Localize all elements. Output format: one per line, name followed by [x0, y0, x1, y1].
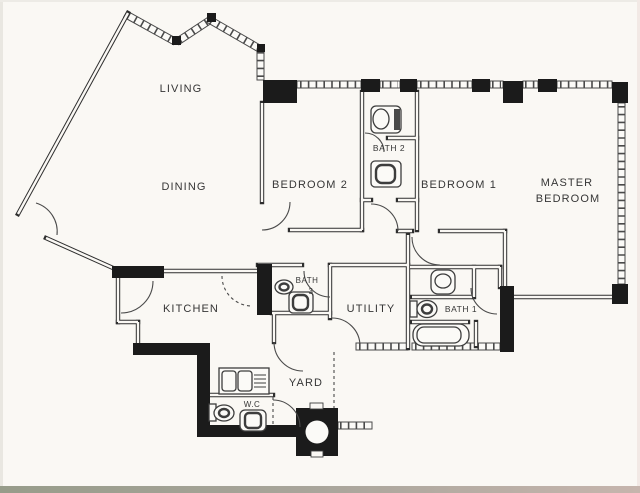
service-duct-column [296, 403, 338, 457]
washing-machine-counter [219, 368, 269, 394]
wc-label: W.C [244, 400, 261, 409]
wc-sink [209, 404, 234, 421]
walls [18, 13, 612, 395]
floor-plan-scan: LIVING DINING BEDROOM 2 BEDROOM 1 MASTER… [0, 0, 640, 493]
column-master-bottom [612, 284, 628, 304]
column-top-3 [472, 79, 490, 92]
bath1-toilet [431, 270, 455, 294]
column-top-1 [361, 79, 380, 92]
column-living-corner [263, 80, 297, 103]
column-top-4 [503, 81, 523, 103]
yard-door-arc [274, 342, 303, 371]
kitchen-label: KITCHEN [163, 303, 219, 315]
scan-edge-top [0, 0, 640, 2]
bath2-door-arc [371, 204, 398, 231]
balcony-joint-3 [257, 44, 265, 52]
bedroom2-door-arc [262, 202, 290, 230]
master-window-top [557, 81, 612, 88]
column-top-2 [400, 79, 417, 92]
scan-bottom-strip [0, 486, 640, 493]
bath3-label-2: 3 [309, 287, 314, 296]
column-top-right [612, 82, 628, 103]
yard-label: YARD [289, 377, 323, 389]
kitchen-corridor-door-arc [222, 276, 252, 306]
master-bedroom-label-2: BEDROOM [536, 193, 601, 205]
living-side-window [257, 49, 264, 80]
bath1-bathtub [413, 324, 469, 346]
bath2-window [380, 81, 400, 88]
wc-door-arc [273, 400, 300, 427]
floor-plan-drawing: LIVING DINING BEDROOM 2 BEDROOM 1 MASTER… [0, 0, 640, 493]
kitchen-door-arc [121, 281, 153, 313]
bedroom2-label: BEDROOM 2 [272, 179, 348, 191]
top-window-5 [523, 81, 538, 88]
top-window-4 [490, 81, 503, 88]
main-entrance-door-arc [36, 203, 57, 235]
yard-vent-window [338, 422, 372, 429]
wall-solid-kitchen-entry [112, 266, 164, 278]
utility-label: UTILITY [347, 303, 396, 315]
bath3-sink [275, 280, 293, 294]
bath2-sink [371, 161, 401, 187]
bath2-label: BATH 2 [373, 143, 405, 153]
wc-toilet [240, 410, 266, 431]
living-label: LIVING [160, 83, 203, 95]
bath1-label: BATH 1 [445, 304, 477, 314]
column-top-5 [538, 79, 557, 92]
master-bedroom-label-1: MASTER [541, 177, 593, 189]
bath2-toilet [371, 106, 401, 133]
bedroom1-label: BEDROOM 1 [421, 179, 497, 191]
utility-window [356, 343, 408, 350]
wall-solid-bath1-right [500, 286, 514, 352]
bedroom1-window [417, 81, 472, 88]
bath1-sink [410, 301, 437, 318]
scan-edge-left [0, 0, 3, 493]
utility-door-arc [332, 318, 360, 346]
balcony-joint-1 [172, 36, 181, 45]
bath3-label-1: BATH [296, 276, 319, 285]
wall-solid-bath3 [257, 264, 272, 315]
wall-solid-yard-left [197, 343, 210, 437]
master-window-right [618, 103, 625, 284]
balcony-joint-2 [207, 13, 216, 22]
bedroom1-door-arc [412, 237, 440, 265]
dining-label: DINING [161, 181, 206, 193]
balcony-window-1 [124, 11, 177, 45]
bedroom2-window [297, 81, 361, 88]
structural-columns [112, 13, 628, 457]
